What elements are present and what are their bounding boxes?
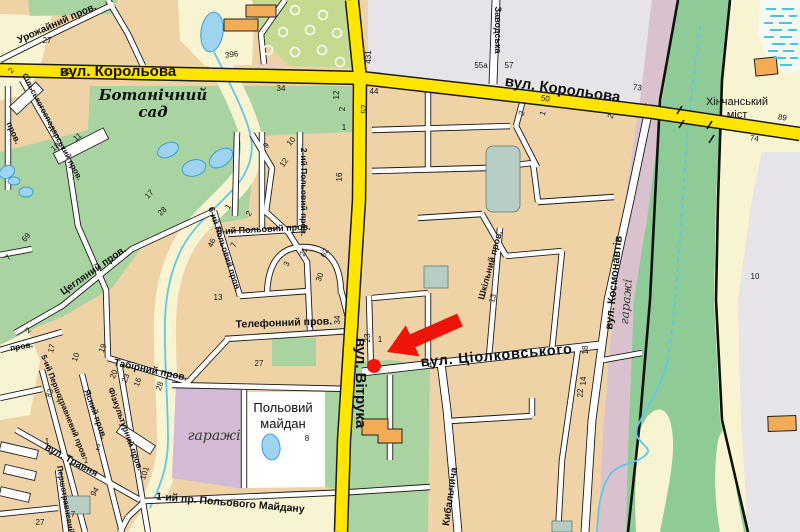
green-patch-telefonnyi xyxy=(272,338,316,366)
city-map[interactable]: вул. Корольовавул. Корольовавул. Вітрука… xyxy=(0,0,800,532)
house-number: 14 xyxy=(579,376,588,385)
street-zavodska: Заводська xyxy=(493,6,503,54)
house-number: 89 xyxy=(777,112,788,122)
house-number: 431 xyxy=(364,50,373,64)
house-number: 27 xyxy=(255,359,264,368)
reservoir-small-1 xyxy=(424,266,448,288)
house-number: 16 xyxy=(335,172,344,181)
house-number: 1 xyxy=(342,123,347,132)
house-number: 44 xyxy=(370,87,379,96)
house-number: 22 xyxy=(576,388,585,397)
house-number: 2 xyxy=(338,106,347,111)
house-number: 23 xyxy=(363,333,372,342)
house-number: 7 xyxy=(71,510,76,519)
bridge-khinchanskyi-line1: Хінчанський xyxy=(706,96,768,108)
house-number: 18 xyxy=(581,345,590,354)
house-number: 52 xyxy=(360,104,369,113)
building-orange-4 xyxy=(754,57,778,76)
house-number: 74 xyxy=(749,133,760,143)
house-number: 73 xyxy=(632,82,643,92)
house-number: 1 xyxy=(378,335,383,344)
house-number: 8 xyxy=(305,434,310,443)
house-number: 34 xyxy=(277,84,286,93)
house-number: 12 xyxy=(332,90,341,99)
area-botanical-garden-line1: Ботанічний xyxy=(98,86,208,104)
pond-left-1 xyxy=(8,177,20,185)
bridge-khinchanskyi-line2: міст xyxy=(727,109,748,121)
house-number: 34 xyxy=(333,315,342,324)
street-korolova-west: вул. Корольова xyxy=(60,63,177,80)
house-number: 27 xyxy=(36,518,45,527)
area-polovyi-maidan-line1: Польовий xyxy=(253,400,312,415)
marker-dot[interactable] xyxy=(367,359,381,373)
area-garages-south: гаражі xyxy=(187,428,240,444)
building-orange-1 xyxy=(246,5,276,17)
building-orange-2 xyxy=(224,19,258,31)
house-number: 13 xyxy=(214,293,223,302)
reservoir-small-2 xyxy=(552,521,572,532)
area-polovyi-maidan-line2: майдан xyxy=(260,416,305,431)
area-botanical-garden-line2: сад xyxy=(138,103,167,121)
house-number: 10 xyxy=(751,272,760,281)
house-number: 4 xyxy=(428,361,433,370)
house-number: 57 xyxy=(505,61,514,70)
house-number: 1 xyxy=(45,437,50,446)
house-number: 1 xyxy=(84,456,89,465)
street-vitruka: вул. Вітрука xyxy=(352,338,369,429)
house-number: 32 xyxy=(63,67,72,76)
house-number: 396 xyxy=(224,49,239,60)
reservoir-large xyxy=(486,146,520,212)
house-number: 50 xyxy=(540,93,551,103)
pond-left-2 xyxy=(19,187,33,197)
house-number: 55а xyxy=(474,61,488,70)
house-number: 1 xyxy=(56,395,61,404)
lane-polovyi-2: 2-ий Польовий пров. xyxy=(299,148,309,236)
house-number: 27 xyxy=(43,36,52,45)
building-orange-3 xyxy=(768,416,797,432)
map-canvas[interactable]: вул. Корольовавул. Корольовавул. Вітрука… xyxy=(0,0,800,532)
house-number: 2 xyxy=(96,443,101,452)
